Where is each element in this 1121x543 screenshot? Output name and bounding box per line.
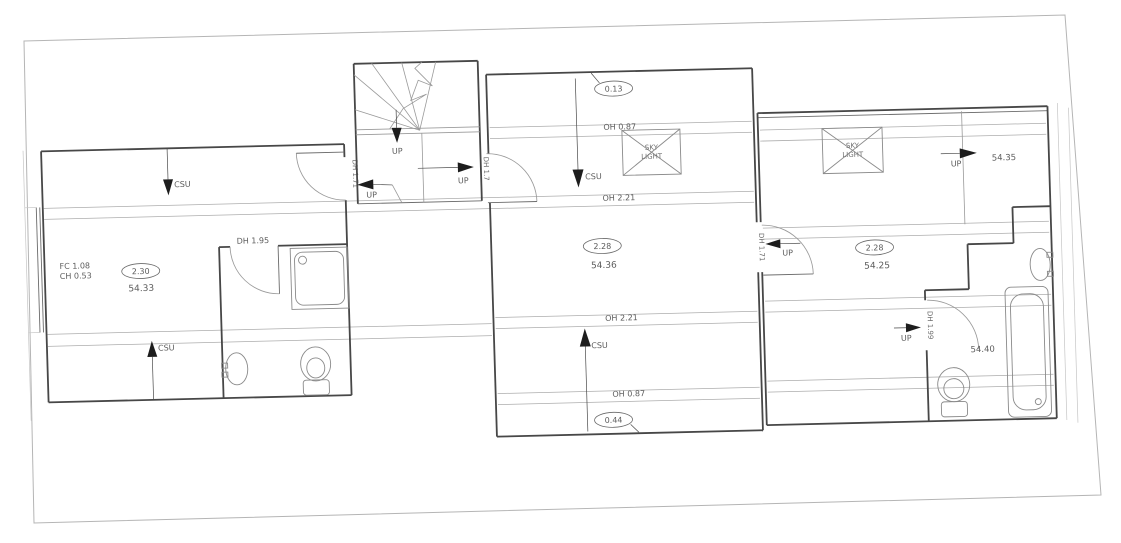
csu-label-bottom: CSU bbox=[591, 341, 608, 350]
page-border bbox=[24, 15, 1101, 523]
up-arrow-left-icon bbox=[357, 179, 392, 190]
leader-line-top bbox=[591, 73, 599, 83]
stairwell: UP UP UP DH 1.7 bbox=[354, 61, 491, 204]
oh-upper-label: OH 2.21 bbox=[602, 193, 635, 203]
door-height-label: DH 1.7 bbox=[482, 157, 491, 181]
hall-door bbox=[486, 153, 536, 203]
up-arrow-left-icon bbox=[765, 239, 800, 249]
plan-content: CSU CSU FC 1.08 CH 0.53 2.30 54.33 DH 1.… bbox=[21, 47, 1078, 448]
up-arrow-down-icon bbox=[391, 110, 402, 143]
exterior-face-line-2 bbox=[1069, 108, 1078, 423]
door-height-label: DH 1.95 bbox=[237, 236, 270, 246]
leader-line-bottom bbox=[631, 424, 639, 432]
up-arrow-right-icon bbox=[418, 162, 474, 173]
exterior-face-line bbox=[1057, 103, 1067, 420]
csu-arrow-down bbox=[162, 148, 173, 195]
room-area-label: 54.25 bbox=[864, 261, 890, 272]
sink-icon bbox=[221, 353, 248, 386]
csu-arrow-down bbox=[570, 78, 584, 187]
csu-label-top: CSU bbox=[174, 180, 191, 189]
up-label-left: UP bbox=[366, 190, 377, 199]
up-arrow-right-icon bbox=[894, 323, 921, 333]
skylight-label-2: LIGHT bbox=[842, 151, 864, 160]
oh-lower-label: OH 2.21 bbox=[605, 313, 638, 323]
room-area-label: 54.36 bbox=[591, 261, 617, 272]
right-bathroom: DH 1.99 UP 54.40 bbox=[890, 206, 1057, 422]
fc-value-label: FC 1.08 bbox=[59, 261, 90, 271]
skylight-label-1: SKY bbox=[645, 144, 659, 152]
circled-value-label: 2.28 bbox=[593, 242, 611, 251]
room-area-label: 54.33 bbox=[128, 284, 154, 295]
sink-icon bbox=[1030, 248, 1054, 281]
ch-value-label: CH 0.53 bbox=[60, 271, 92, 281]
floorplan-page: CSU CSU FC 1.08 CH 0.53 2.30 54.33 DH 1.… bbox=[0, 0, 1121, 543]
left-bathroom-door bbox=[230, 246, 279, 295]
skylight-label-2: LIGHT bbox=[641, 152, 663, 161]
up-label-right: UP bbox=[458, 176, 469, 185]
room-area-label: 54.40 bbox=[970, 345, 995, 356]
toilet-icon bbox=[300, 347, 331, 396]
skylight-label-1: SKY bbox=[846, 142, 860, 150]
right-bathroom-walls bbox=[922, 206, 1056, 421]
up-label-top: UP bbox=[951, 159, 962, 168]
circled-value-label: 2.28 bbox=[866, 243, 884, 252]
csu-label-bottom: CSU bbox=[158, 343, 175, 352]
oh-bottom-label: OH 0.87 bbox=[612, 389, 645, 399]
csu-label-top: CSU bbox=[585, 172, 602, 181]
right-bathroom-door bbox=[927, 299, 979, 350]
left-bathroom-walls bbox=[219, 244, 352, 398]
door-height-label: DH 1.99 bbox=[925, 311, 934, 340]
door-height-label: DH 1.71 bbox=[757, 233, 766, 262]
left-room: CSU CSU FC 1.08 CH 0.53 2.30 54.33 DH 1.… bbox=[23, 143, 366, 421]
ceiling-contour-lines bbox=[42, 114, 1054, 415]
up-label-door: UP bbox=[901, 334, 912, 343]
floorplan-drawing: CSU CSU FC 1.08 CH 0.53 2.30 54.33 DH 1.… bbox=[0, 0, 1121, 543]
toilet-icon bbox=[937, 367, 970, 417]
up-label-top: UP bbox=[392, 147, 403, 156]
csu-arrow-up bbox=[147, 341, 159, 400]
circled-value-label: 2.30 bbox=[132, 267, 150, 276]
circled-top-label: 0.13 bbox=[605, 84, 623, 93]
circled-bottom-label: 0.44 bbox=[605, 416, 623, 425]
up-arrow-right-icon bbox=[941, 148, 977, 159]
left-room-door bbox=[296, 152, 345, 201]
up-label-door: UP bbox=[782, 248, 793, 257]
level-value-label: 54.35 bbox=[992, 153, 1017, 164]
left-bathroom: DH 1.95 bbox=[218, 234, 352, 398]
shower-icon bbox=[290, 247, 349, 309]
section-line bbox=[962, 111, 965, 224]
